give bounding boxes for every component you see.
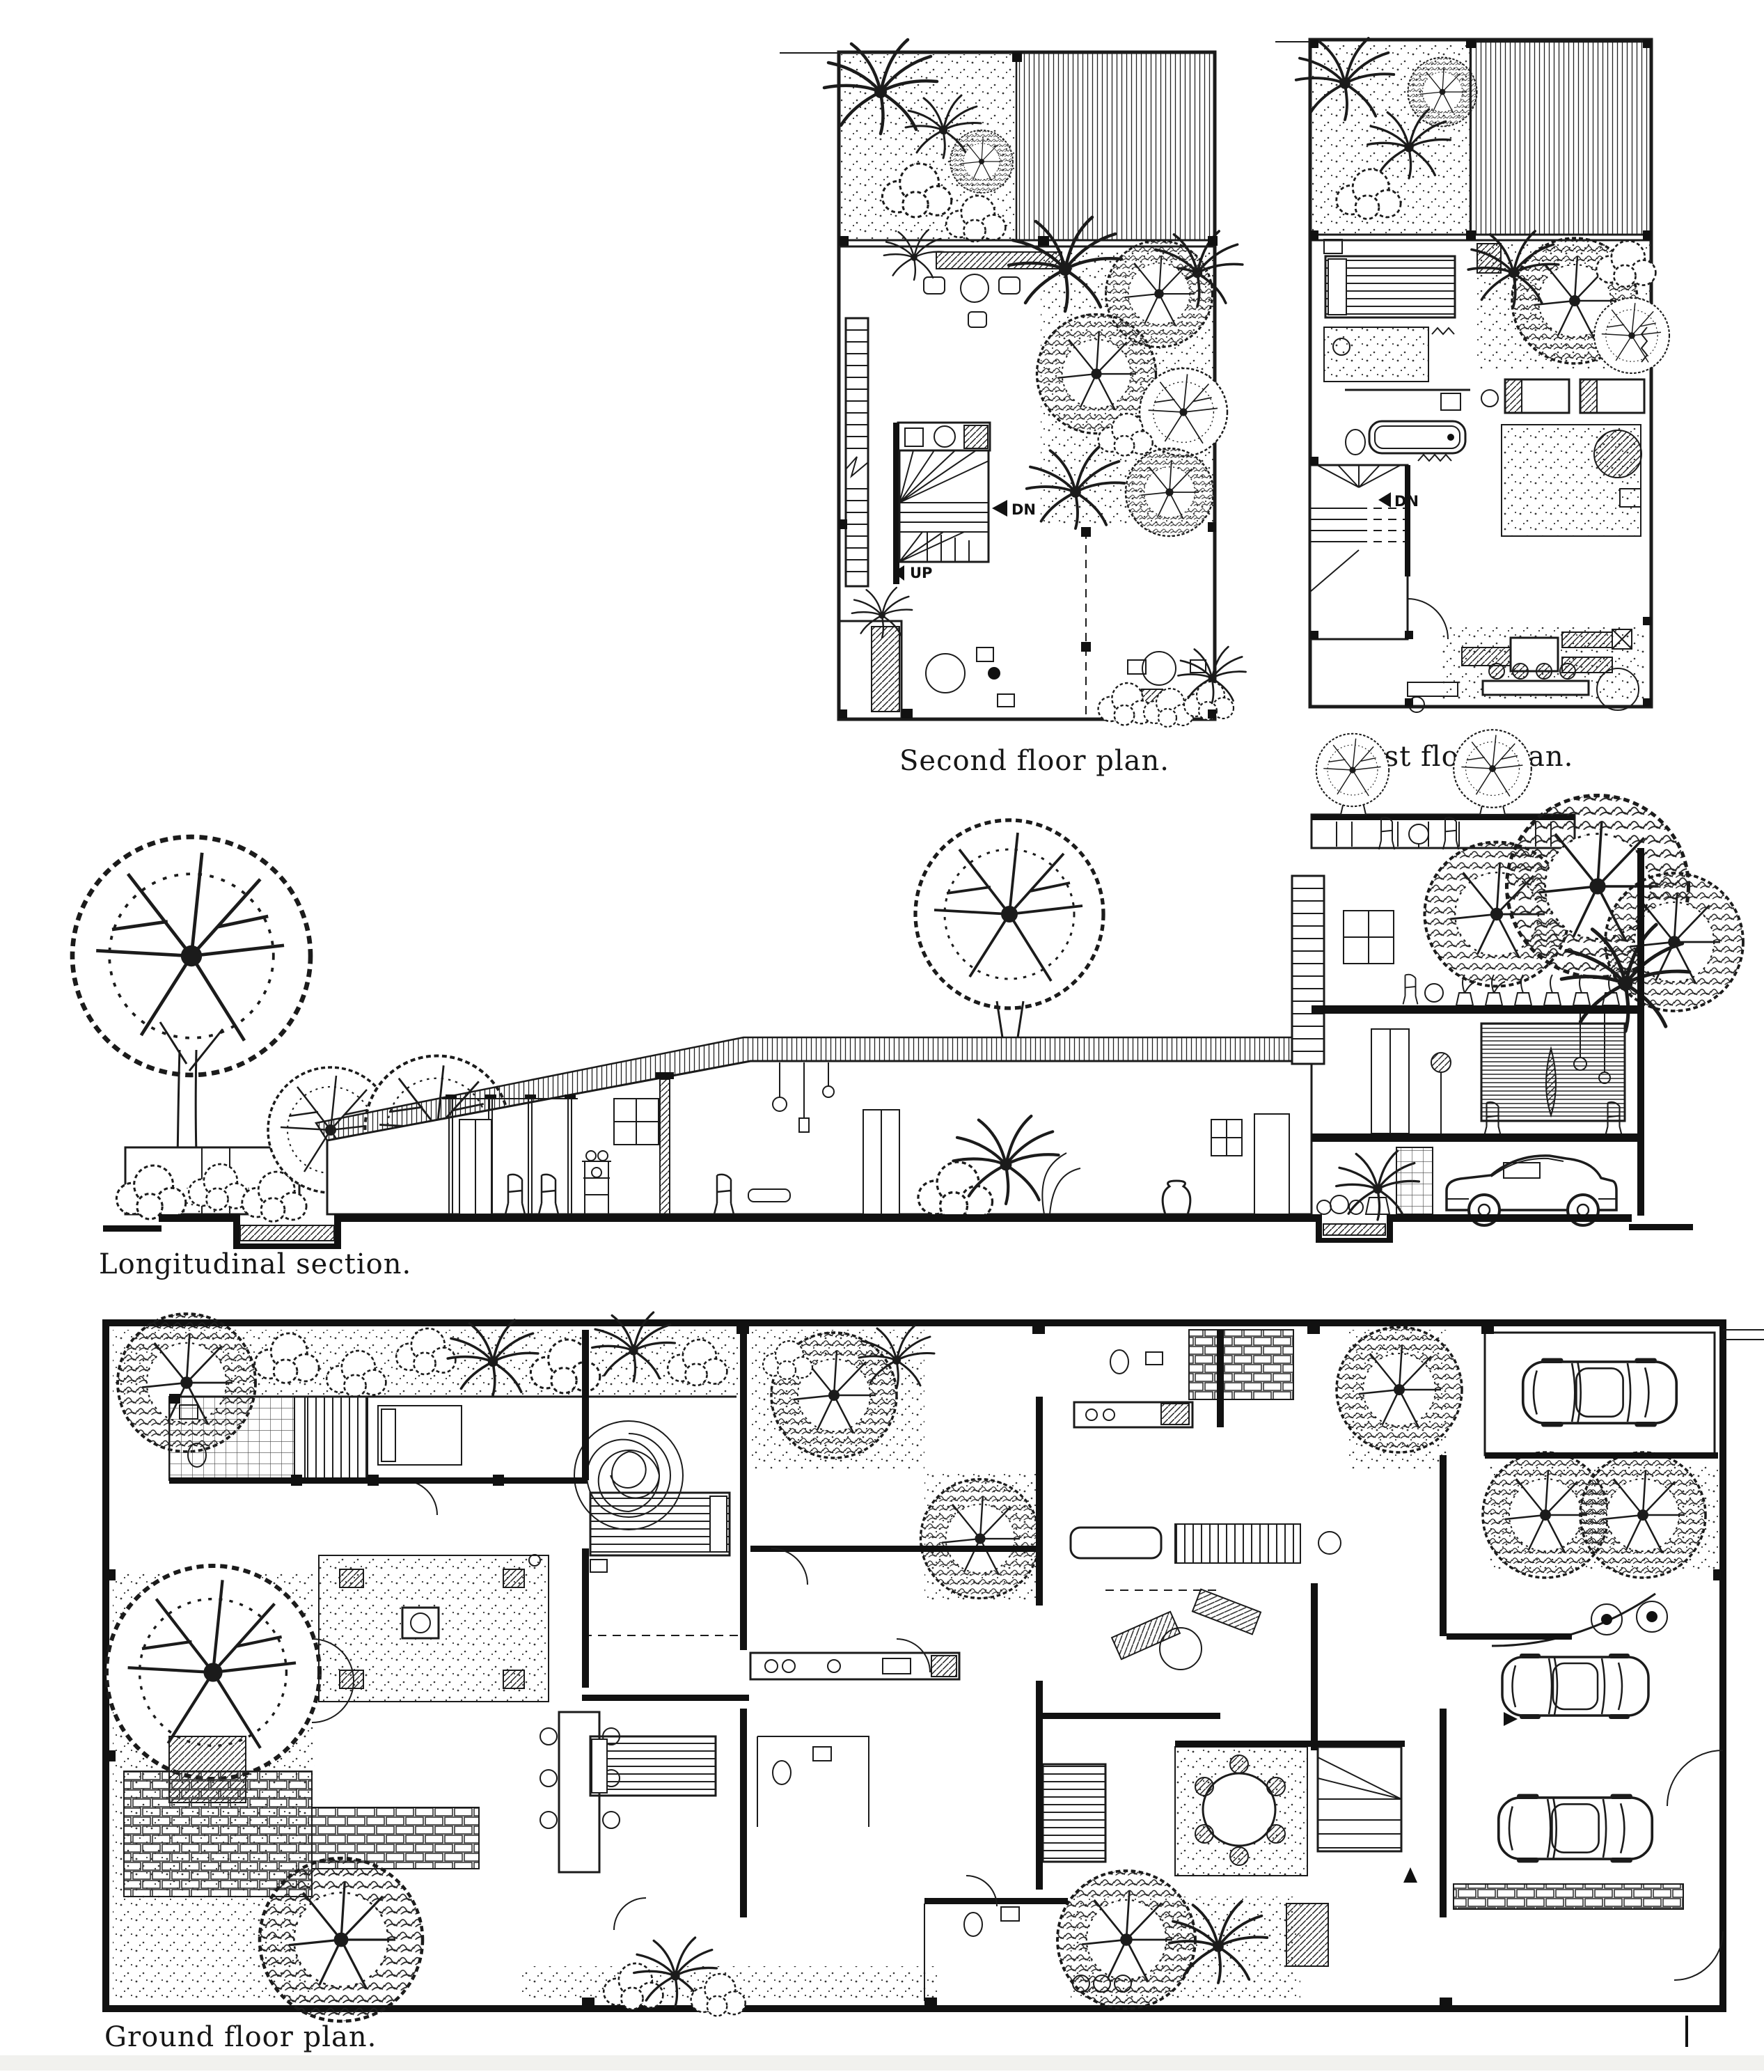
second-floor-plan-drawing: DN UP [780,40,1246,727]
bed [590,1736,716,1796]
floor-slab [1312,1005,1641,1014]
ground-floor-plan-drawing [106,1312,1764,2021]
floor-slab [1312,1133,1641,1142]
garage-level [1317,1147,1616,1225]
slatted-screen [1175,1524,1300,1563]
garden-planting [1296,38,1477,235]
courtyard-tree [1580,1452,1706,1578]
longitudinal-section-figure [97,744,1699,1266]
car-icon [1499,1794,1653,1863]
scanned-drawing-page: DN UP [0,0,1764,2072]
ground-line [103,1214,1693,1249]
living-room [1408,623,1644,712]
dn-label: DN [1394,493,1419,510]
tiled-bathroom [169,1397,294,1480]
courtyard-trees [1468,231,1669,373]
roof-hatch [1470,42,1651,235]
ground-floor-plan-figure [103,1319,1764,2022]
sunken-planter [1323,1224,1385,1235]
round-dining [1175,1747,1307,1876]
rear-block [1292,730,1743,1225]
scan-artifact-band [0,2055,1764,2071]
window [614,1099,659,1145]
living-room [312,1555,549,1722]
street-lines [1723,1330,1764,1340]
exterior-stair [846,318,868,586]
car-icon [1523,1358,1677,1427]
courtyard-trees [1009,217,1243,536]
ground-floor-caption: Ground floor plan. [104,2021,377,2053]
bed [1043,1764,1105,1862]
dn-label: DN [1011,501,1036,518]
bed [590,1493,730,1555]
section-caption: Longitudinal section. [99,1248,411,1280]
lattice-gate [1396,1147,1433,1214]
car-icon [1502,1654,1648,1719]
stair-strip [1292,876,1324,1064]
longitudinal-section-drawing [72,730,1743,1249]
kitchen [750,1653,959,1679]
scan-artifact-tick [1685,2016,1688,2047]
wardrobe [305,1397,368,1480]
second-floor-plan-figure: DN UP [773,43,1218,729]
courtyard-tree [1337,1327,1462,1452]
bathtub [1071,1528,1161,1558]
kitchenette-counter [898,423,990,450]
first-floor-plan-drawing: DN [1275,38,1669,712]
bed [378,1406,462,1465]
roof-garden-planting [824,40,1016,242]
courtyard-tree [921,1480,1040,1599]
first-floor-plan-figure: DN [1272,35,1648,714]
roof-hatch [1016,52,1215,240]
sunken-pool [240,1225,334,1241]
courtyard-tree [1057,1871,1195,2009]
globe-lamp [1431,1053,1451,1072]
tall-courtyard-tree [915,820,1103,1037]
up-label: UP [910,565,932,581]
